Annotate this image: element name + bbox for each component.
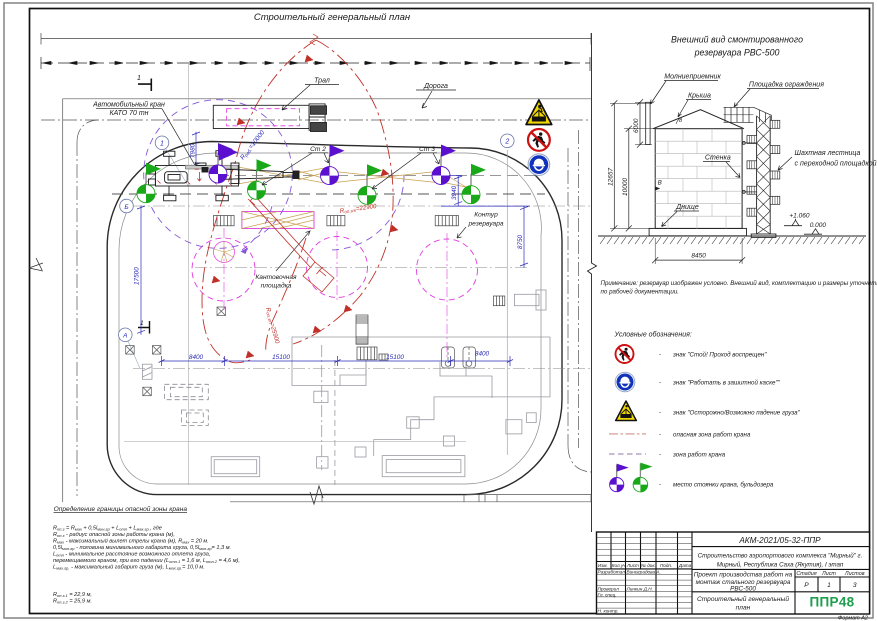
svg-text:по рабочей документации.: по рабочей документации. <box>601 289 680 296</box>
svg-text:Ст 2: Ст 2 <box>310 146 326 153</box>
svg-text:-: - <box>659 410 661 417</box>
svg-text:-: - <box>659 431 661 438</box>
svg-text:Проверил: Проверил <box>598 587 620 592</box>
svg-text:Подп.: Подп. <box>660 563 672 568</box>
svg-text:8400: 8400 <box>189 354 204 361</box>
svg-text:знак "Работать в зашитной каск: знак "Работать в зашитной каске"" <box>672 380 781 387</box>
svg-text:Примечание: резервуар изображе: Примечание: резервуар изображен условно.… <box>601 280 877 287</box>
svg-text:3940: 3940 <box>451 185 458 200</box>
svg-text:Lотл - минимальное расстоян: Lотл - минимальное расстояние возможного… <box>53 552 210 558</box>
svg-text:Шахтная лестница: Шахтная лестница <box>795 150 861 157</box>
svg-text:Проект производства работ на: Проект производства работ на <box>694 571 793 579</box>
svg-text:Автомобильный кран: Автомобильный кран <box>92 101 165 109</box>
svg-text:резервуара: резервуара <box>467 221 503 228</box>
svg-text:с переходной площадкой: с переходной площадкой <box>795 160 877 168</box>
svg-text:Б: Б <box>124 204 128 211</box>
svg-text:Изм.: Изм. <box>598 563 608 568</box>
svg-text:7980: 7980 <box>190 143 197 158</box>
svg-text:Днище: Днище <box>675 204 699 211</box>
svg-text:Определение границы опасной зо: Определение границы опасной зоны крана <box>54 505 188 513</box>
svg-text:Площадка ограждения: Площадка ограждения <box>749 81 824 89</box>
svg-text:Р: Р <box>804 582 809 589</box>
svg-text:Молниеприемник: Молниеприемник <box>664 74 721 81</box>
svg-text:Формат А2: Формат А2 <box>838 616 868 621</box>
svg-text:1: 1 <box>140 320 144 327</box>
svg-text:Rоп.з.2 = 25,9 м.: Rоп.з.2 = 25,9 м. <box>53 599 92 605</box>
svg-text:Н. контр.: Н. контр. <box>598 609 619 614</box>
svg-text:3: 3 <box>853 582 857 589</box>
svg-text:10000: 10000 <box>622 178 629 196</box>
svg-text:Кол.уч: Кол.уч <box>612 563 626 568</box>
svg-text:знак "Стой! Проход воспрещен": знак "Стой! Проход воспрещен" <box>672 352 767 359</box>
svg-text:1: 1 <box>137 75 141 82</box>
svg-text:15100: 15100 <box>386 354 404 361</box>
svg-text:Стадия: Стадия <box>796 571 816 577</box>
svg-text:8400: 8400 <box>475 350 490 357</box>
svg-text:АКМ-2021/05-32-ППР: АКМ-2021/05-32-ППР <box>738 536 821 545</box>
svg-text:8750: 8750 <box>517 234 524 249</box>
svg-text:место стоянки крана, бульдозер: место стоянки крана, бульдозера <box>673 482 774 489</box>
svg-text:Ст 3: Ст 3 <box>419 146 435 153</box>
svg-text:Дата: Дата <box>678 563 692 568</box>
svg-text:зона работ крана: зона работ крана <box>672 451 726 458</box>
svg-text:Контур: Контур <box>474 212 498 219</box>
svg-text:6000: 6000 <box>633 118 640 133</box>
svg-text:опасная зона работ крана: опасная зона работ крана <box>673 431 751 438</box>
svg-text:РВС-500: РВС-500 <box>730 586 756 593</box>
svg-text:-: - <box>659 380 661 387</box>
svg-text:Гл. спец.: Гл. спец. <box>598 592 617 597</box>
svg-text:Lмах.гр. - максимальный габари: Lмах.гр. - максимальный габарит груза (м… <box>53 564 205 571</box>
svg-text:Линкин Д.Н.: Линкин Д.Н. <box>626 587 653 592</box>
svg-text:резервуара РВС-500: резервуара РВС-500 <box>694 48 780 58</box>
svg-text:В: В <box>658 181 662 187</box>
svg-text:Дорога: Дорога <box>423 83 448 90</box>
svg-text:Трал: Трал <box>314 78 330 85</box>
svg-text:Крыша: Крыша <box>688 93 711 100</box>
svg-text:Строительный генеральный пла: Строительный генеральный план <box>254 12 411 23</box>
svg-text:ППР48: ППР48 <box>810 595 855 610</box>
svg-text:Внешний вид смонтированного: Внешний вид смонтированного <box>671 35 803 45</box>
svg-text:0,5lмин.гр - половина минималь: 0,5lмин.гр - половина минимального габар… <box>53 545 231 551</box>
svg-text:Строительный генеральный: Строительный генеральный <box>697 595 789 603</box>
svg-text:8450: 8450 <box>691 253 706 260</box>
svg-text:Лист: Лист <box>626 563 639 568</box>
svg-text:-: - <box>659 482 661 489</box>
svg-text:12657: 12657 <box>607 168 614 186</box>
svg-text:Разработал: Разработал <box>598 570 626 575</box>
svg-text:Строительство аэропортового ко: Строительство аэропортового комплекса "М… <box>698 553 863 560</box>
svg-text:1: 1 <box>160 141 164 148</box>
svg-text:Стенка: Стенка <box>705 154 731 161</box>
svg-text:15100: 15100 <box>272 354 290 361</box>
svg-text:Rоп.з = Rмах + 0,5lмин.гр + Lо: Rоп.з = Rмах + 0,5lмин.гр + Lотл + Lмах.… <box>53 526 162 532</box>
svg-text:знак "Осторожно/Возможно паден: знак "Осторожно/Возможно падение груза" <box>672 410 801 417</box>
svg-text:0.000: 0.000 <box>810 222 827 229</box>
svg-text:Rоп.з - радиус опасной зоны ра: Rоп.з - радиус опасной зоны работы крана… <box>53 531 175 538</box>
svg-text:Условные обозначения:: Условные обозначения: <box>614 331 692 339</box>
svg-text:Кантовочная: Кантовочная <box>255 274 297 281</box>
svg-text:2: 2 <box>504 139 509 146</box>
svg-text:план: план <box>736 605 751 612</box>
svg-text:КАТО 70 тн: КАТО 70 тн <box>109 110 148 117</box>
svg-text:1: 1 <box>827 582 831 589</box>
svg-text:Мирный, Республика Саха (Якути: Мирный, Республика Саха (Якутия), I этап <box>717 562 844 569</box>
svg-text:-: - <box>659 352 661 359</box>
svg-text:Rоп.з.1 = 22,9 м,: Rоп.з.1 = 22,9 м, <box>53 592 92 598</box>
svg-text:№ док.: № док. <box>641 563 656 568</box>
svg-text:17500: 17500 <box>134 267 141 285</box>
svg-text:+1.060: +1.060 <box>789 213 809 220</box>
svg-text:Виноградова А.: Виноградова А. <box>627 570 661 575</box>
svg-text:А: А <box>122 333 127 340</box>
svg-text:Лист: Лист <box>821 571 836 577</box>
svg-text:-: - <box>659 451 661 458</box>
svg-text:Листов: Листов <box>844 571 865 577</box>
svg-text:Rмах - максимальный вылет стре: Rмах - максимальный вылет стрелы крана (… <box>53 538 209 545</box>
svg-text:перемещаемого краном, при его: перемещаемого краном, при его падении (L… <box>53 558 240 564</box>
